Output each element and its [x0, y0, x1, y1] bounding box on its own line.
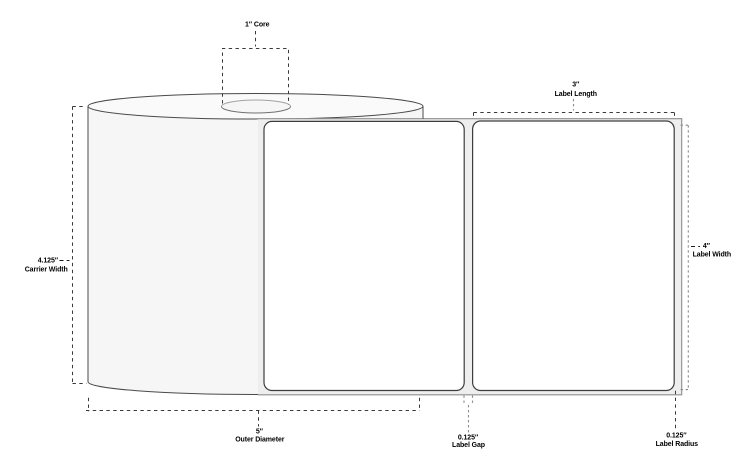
svg-text:4″: 4″: [703, 243, 711, 250]
svg-text:Label Width: Label Width: [693, 251, 732, 258]
svg-text:5″: 5″: [256, 428, 264, 435]
svg-text:Label Gap: Label Gap: [452, 442, 485, 449]
svg-text:Label Radius: Label Radius: [656, 441, 699, 448]
svg-text:1″ Core: 1″ Core: [245, 22, 270, 29]
svg-text:Outer Diameter: Outer Diameter: [235, 437, 285, 444]
svg-text:Label Length: Label Length: [555, 91, 597, 98]
svg-text:0.125″: 0.125″: [666, 433, 687, 440]
svg-text:Carrier Width: Carrier Width: [25, 266, 68, 273]
svg-text:4.125″: 4.125″: [38, 258, 59, 265]
svg-text:3″: 3″: [572, 81, 580, 88]
svg-text:0.125″: 0.125″: [458, 434, 479, 441]
